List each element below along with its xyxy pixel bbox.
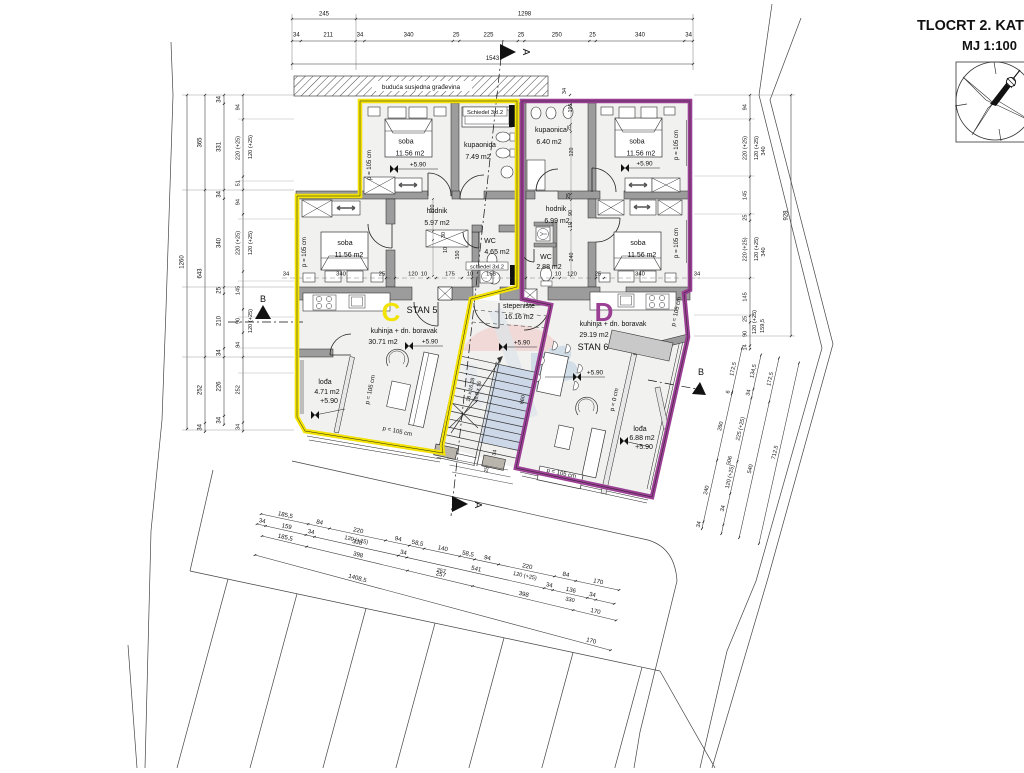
svg-text:16.16 m2: 16.16 m2: [504, 314, 533, 321]
svg-text:159,5: 159,5: [760, 319, 766, 333]
svg-text:1298: 1298: [518, 12, 532, 18]
svg-text:soba: soba: [630, 240, 645, 247]
svg-text:soba: soba: [629, 139, 644, 146]
svg-text:kuhinja + dn. boravak: kuhinja + dn. boravak: [371, 328, 438, 335]
svg-text:94: 94: [743, 104, 749, 110]
svg-text:+5.90: +5.90: [410, 162, 427, 169]
svg-text:120 (+25): 120 (+25): [754, 136, 760, 160]
svg-text:25: 25: [518, 33, 525, 39]
svg-text:220 (+25): 220 (+25): [743, 136, 749, 160]
svg-text:250: 250: [552, 33, 563, 39]
svg-text:210: 210: [217, 315, 223, 326]
svg-text:25: 25: [595, 272, 601, 278]
svg-text:34: 34: [217, 95, 223, 102]
svg-text:120 (+25): 120 (+25): [752, 310, 758, 334]
svg-text:34: 34: [357, 33, 364, 39]
svg-text:340: 340: [404, 33, 415, 39]
svg-text:30: 30: [441, 232, 447, 238]
svg-text:34: 34: [217, 349, 223, 356]
svg-text:150: 150: [455, 251, 461, 260]
svg-text:5.97 m2: 5.97 m2: [424, 220, 449, 227]
svg-text:94: 94: [236, 104, 242, 110]
svg-text:220 (+25): 220 (+25): [743, 237, 749, 261]
svg-text:34: 34: [283, 272, 290, 278]
svg-text:STAN 5: STAN 5: [407, 305, 438, 315]
svg-text:25: 25: [379, 272, 385, 278]
svg-text:p = 105 cm: p = 105 cm: [367, 150, 373, 180]
svg-text:Schiedel 3xl.2: Schiedel 3xl.2: [467, 110, 503, 116]
svg-text:340: 340: [635, 33, 646, 39]
svg-text:WC: WC: [484, 238, 496, 245]
svg-text:lođa: lođa: [633, 426, 646, 433]
svg-text:25: 25: [743, 316, 749, 322]
svg-text:10: 10: [467, 272, 473, 278]
svg-text:365: 365: [198, 137, 204, 148]
svg-text:25: 25: [217, 286, 223, 293]
svg-text:240: 240: [569, 253, 575, 262]
svg-text:120 (+25): 120 (+25): [248, 309, 254, 333]
svg-text:lođa: lođa: [318, 379, 331, 386]
svg-text:643: 643: [198, 268, 204, 279]
svg-text:175: 175: [445, 272, 455, 278]
svg-text:34: 34: [694, 272, 701, 278]
svg-text:1543: 1543: [486, 56, 500, 62]
svg-text:120 (+25): 120 (+25): [754, 237, 760, 261]
svg-text:B: B: [260, 294, 266, 304]
svg-text:252: 252: [236, 385, 242, 394]
svg-text:928: 928: [784, 210, 790, 221]
svg-text:25: 25: [453, 33, 460, 39]
svg-text:TLOCRT 2. KAT: TLOCRT 2. KAT: [917, 18, 1024, 34]
svg-text:A: A: [520, 49, 531, 56]
svg-text:34: 34: [236, 424, 242, 430]
svg-text:34: 34: [562, 88, 568, 94]
svg-text:7.49 m2: 7.49 m2: [465, 154, 490, 161]
svg-text:10: 10: [443, 247, 449, 253]
svg-text:90: 90: [568, 210, 574, 216]
svg-text:340: 340: [336, 272, 346, 278]
svg-text:220 (+25): 220 (+25): [236, 136, 242, 160]
svg-text:225: 225: [483, 33, 494, 39]
svg-text:25: 25: [567, 125, 573, 131]
svg-text:buduća susjedna građevina: buduća susjedna građevina: [382, 84, 461, 91]
svg-text:25: 25: [743, 214, 749, 220]
svg-text:6.88 m2: 6.88 m2: [629, 435, 654, 442]
svg-text:+5.90: +5.90: [320, 398, 338, 405]
svg-text:34: 34: [217, 416, 223, 423]
svg-text:kupaonica: kupaonica: [535, 127, 567, 134]
svg-text:+5.90: +5.90: [636, 161, 653, 168]
svg-text:stepenište: stepenište: [503, 303, 535, 310]
svg-text:STAN 6: STAN 6: [578, 342, 609, 352]
svg-text:11.56 m2: 11.56 m2: [627, 151, 656, 158]
svg-text:120 (+25): 120 (+25): [248, 231, 254, 255]
svg-text:kupaonica: kupaonica: [464, 142, 496, 149]
svg-text:34: 34: [293, 33, 300, 39]
svg-text:+5.90: +5.90: [514, 340, 531, 347]
svg-text:340: 340: [217, 237, 223, 248]
svg-text:211: 211: [323, 33, 333, 39]
svg-text:p = 105 cm: p = 105 cm: [674, 130, 680, 160]
svg-text:11.56 m2: 11.56 m2: [396, 151, 425, 158]
svg-text:94: 94: [236, 342, 242, 348]
svg-text:34: 34: [491, 449, 498, 456]
svg-text:11.56 m2: 11.56 m2: [335, 252, 364, 259]
svg-text:10: 10: [568, 222, 574, 228]
svg-text:p = 105 cm: p = 105 cm: [674, 228, 680, 258]
svg-text:+5.90: +5.90: [635, 444, 653, 451]
svg-text:195: 195: [568, 104, 574, 113]
svg-text:A: A: [472, 502, 483, 509]
svg-text:schiedel 3xl.2: schiedel 3xl.2: [470, 265, 504, 271]
svg-text:120 (+25): 120 (+25): [248, 135, 254, 159]
svg-text:6.99 m2: 6.99 m2: [544, 218, 569, 225]
svg-text:120: 120: [567, 272, 577, 278]
svg-text:120: 120: [430, 205, 436, 214]
svg-text:C: C: [382, 297, 401, 327]
svg-text:120: 120: [569, 148, 575, 157]
svg-text:34: 34: [198, 423, 204, 430]
svg-text:252: 252: [198, 384, 204, 395]
svg-text:30.71 m2: 30.71 m2: [368, 339, 397, 346]
svg-text:WC: WC: [540, 254, 552, 261]
svg-text:1260: 1260: [180, 255, 186, 269]
svg-text:+5.90: +5.90: [587, 370, 604, 377]
svg-text:145: 145: [743, 191, 749, 200]
svg-text:34: 34: [685, 33, 692, 39]
svg-text:331: 331: [217, 141, 223, 152]
svg-text:25: 25: [589, 33, 596, 39]
svg-text:29.19 m2: 29.19 m2: [579, 332, 608, 339]
svg-text:120: 120: [408, 272, 418, 278]
svg-text:4.71 m2: 4.71 m2: [314, 389, 339, 396]
svg-text:4.65 m2: 4.65 m2: [484, 249, 509, 256]
svg-text:11.56 m2: 11.56 m2: [628, 252, 657, 259]
svg-text:220 (+25): 220 (+25): [236, 231, 242, 255]
svg-text:MJ 1:100: MJ 1:100: [962, 38, 1017, 53]
svg-text:340: 340: [635, 272, 645, 278]
svg-text:145: 145: [743, 292, 749, 301]
svg-text:226: 226: [217, 381, 223, 392]
svg-text:34: 34: [217, 190, 223, 197]
svg-text:10: 10: [555, 272, 561, 278]
svg-text:2.88 m2: 2.88 m2: [536, 264, 561, 271]
svg-text:14: 14: [743, 344, 749, 350]
svg-text:245: 245: [319, 12, 330, 18]
svg-text:hodnik: hodnik: [546, 206, 567, 213]
svg-text:10: 10: [421, 272, 427, 278]
svg-text:p = 105 cm: p = 105 cm: [302, 237, 308, 267]
svg-text:soba: soba: [337, 240, 352, 247]
svg-text:340: 340: [761, 247, 767, 256]
svg-text:+5.90: +5.90: [422, 339, 439, 346]
svg-text:kuhinja + dn. boravak: kuhinja + dn. boravak: [580, 321, 647, 328]
svg-text:25: 25: [566, 193, 572, 199]
svg-text:25: 25: [483, 466, 490, 473]
svg-text:94: 94: [236, 199, 242, 205]
svg-text:340: 340: [761, 146, 767, 155]
svg-text:B: B: [698, 367, 704, 377]
svg-text:90: 90: [236, 318, 242, 324]
svg-text:155: 155: [486, 272, 496, 278]
svg-text:soba: soba: [398, 139, 413, 146]
svg-text:6.40 m2: 6.40 m2: [536, 139, 561, 146]
